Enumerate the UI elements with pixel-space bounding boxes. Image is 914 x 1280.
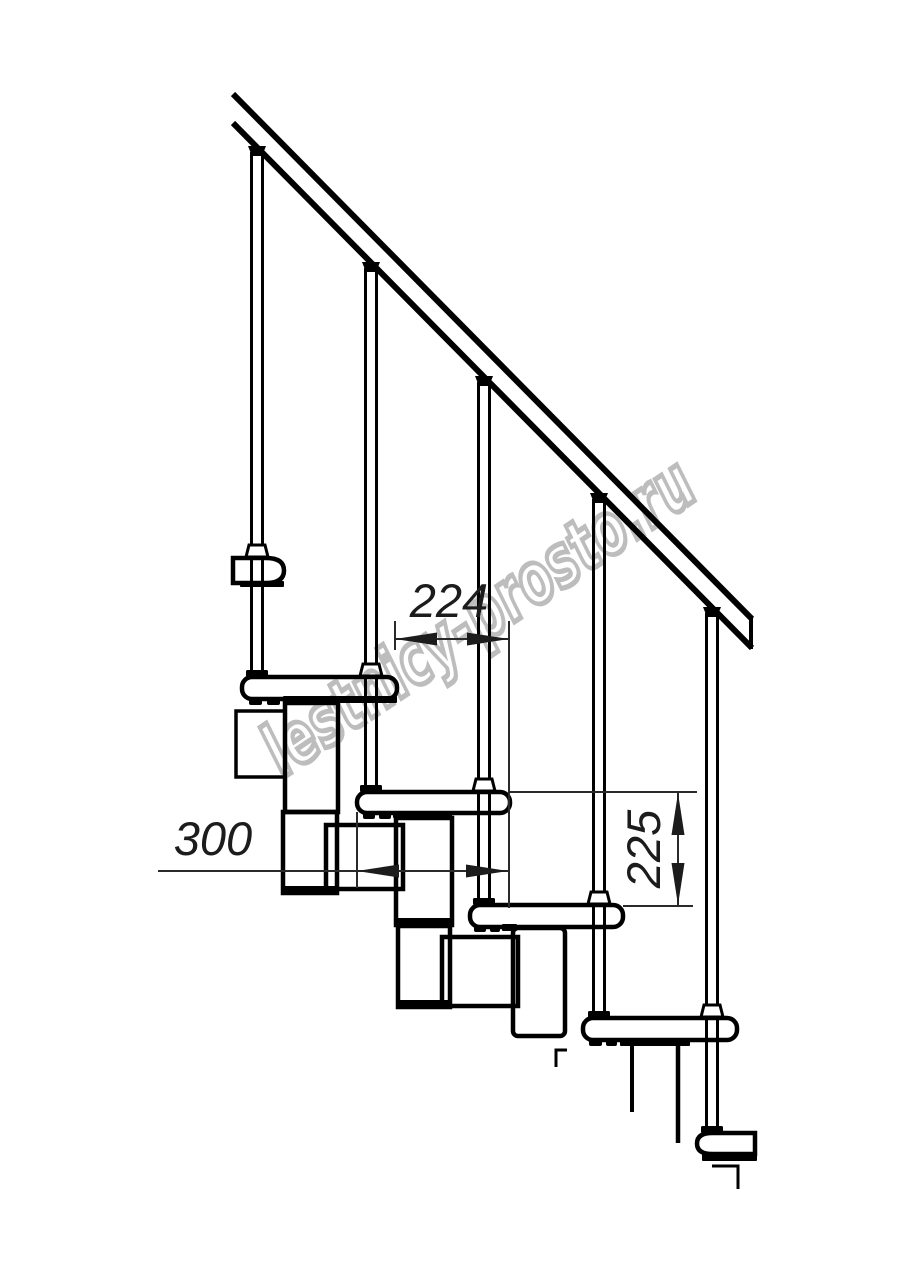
baluster-foot xyxy=(360,785,382,792)
baluster-foot xyxy=(588,1011,610,1018)
handrail-top-edge xyxy=(233,94,752,619)
tread-3 xyxy=(470,905,623,927)
tread-top-half xyxy=(233,558,284,583)
baluster-foot xyxy=(473,898,495,905)
support-module-a2-base xyxy=(283,886,337,895)
baluster-collar xyxy=(701,1005,723,1017)
baluster-collar xyxy=(473,779,495,791)
arrow-right-icon xyxy=(466,865,508,878)
baluster-foot xyxy=(701,1126,723,1133)
dimension-label-225: 225 xyxy=(617,809,670,889)
baluster-5 xyxy=(701,607,723,1133)
arrow-down-icon xyxy=(672,863,685,905)
bottom-bracket xyxy=(697,1133,755,1154)
baluster-1 xyxy=(246,146,268,677)
staircase-drawing: 224 300 225 lestnicy-prosto.ru xyxy=(0,0,914,1280)
baluster-collar xyxy=(588,892,610,904)
baluster-collar xyxy=(246,545,268,557)
support-module-c1 xyxy=(513,928,565,1036)
staircase-drawing-page: 224 300 225 lestnicy-prosto.ru xyxy=(0,0,914,1280)
arrow-up-icon xyxy=(672,793,685,835)
arrow-left-icon xyxy=(357,865,399,878)
dimension-label-300: 300 xyxy=(174,812,252,865)
support-module-b2-base xyxy=(398,1000,450,1008)
break-lines xyxy=(556,1043,738,1189)
tread-4 xyxy=(583,1018,737,1040)
support-module-b1-base xyxy=(396,918,452,927)
support-module-square-2 xyxy=(442,937,518,1006)
tread-2 xyxy=(357,792,510,813)
baluster-foot xyxy=(246,670,268,677)
